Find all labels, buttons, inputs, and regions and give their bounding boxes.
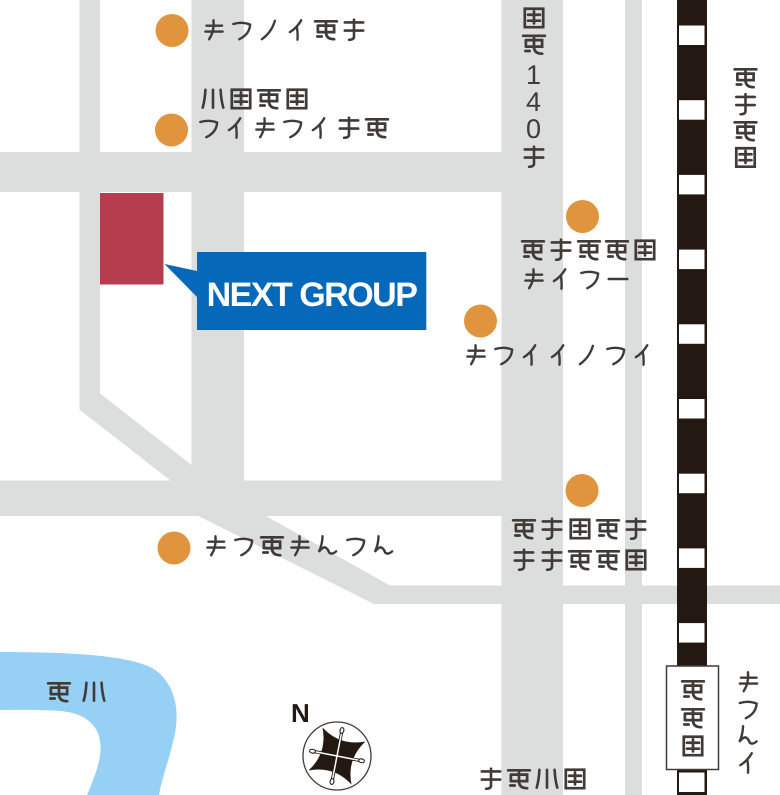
svg-text:N: N <box>291 698 310 728</box>
svg-text:4: 4 <box>526 87 541 117</box>
svg-text:1: 1 <box>526 60 541 90</box>
svg-text:NEXT GROUP: NEXT GROUP <box>207 276 418 314</box>
svg-text:0: 0 <box>526 114 541 144</box>
